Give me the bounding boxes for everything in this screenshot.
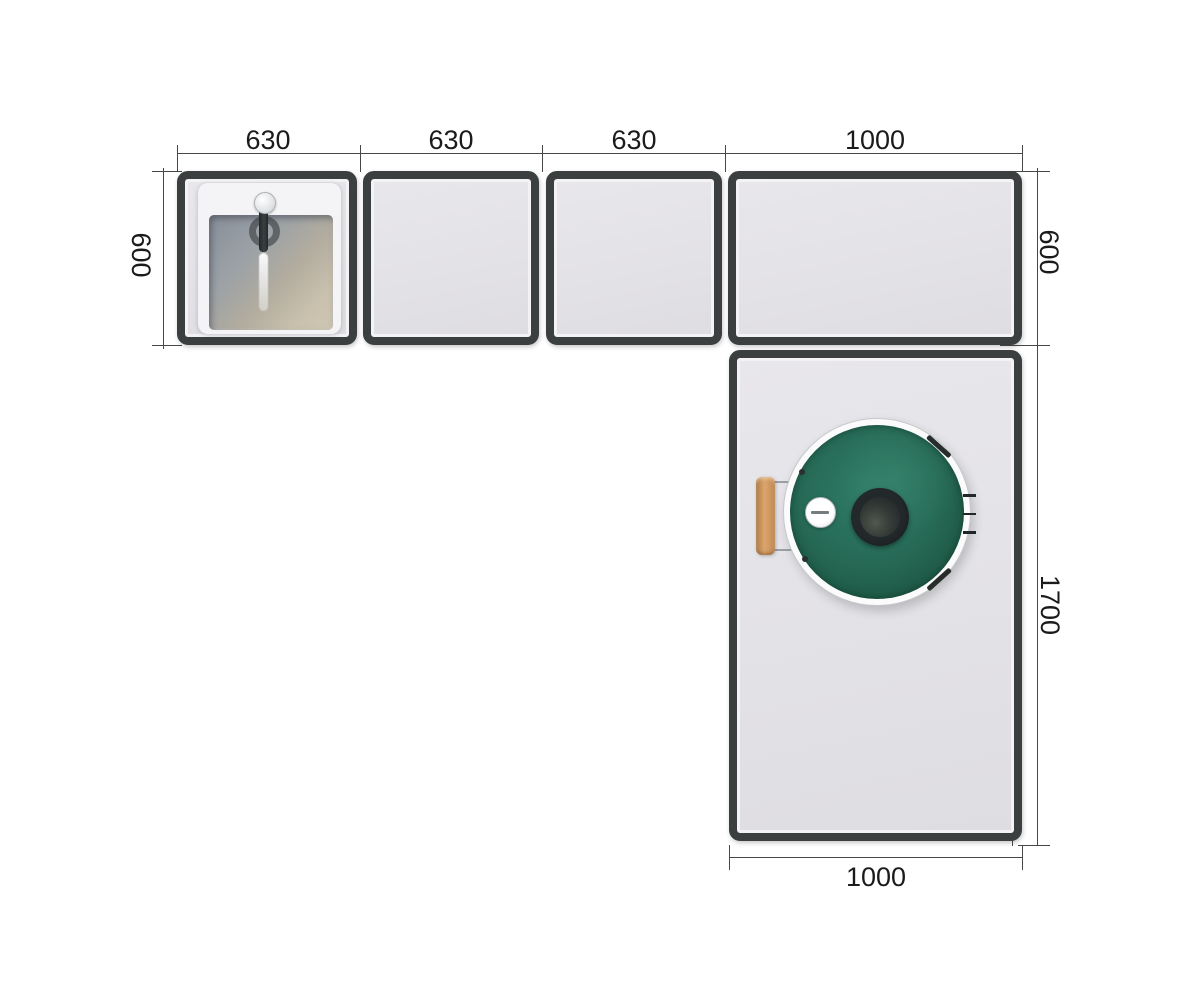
- kamado-grill: [783, 418, 971, 606]
- dim-label-module3-width: 630: [584, 126, 684, 154]
- extension-tick: [1022, 145, 1023, 172]
- grill-wood-handle: [756, 477, 775, 555]
- extension-tick: [729, 845, 730, 870]
- grill-band-bolt: [799, 469, 805, 475]
- grill-hinge-tick: [963, 531, 976, 534]
- dim-label-module2-width: 630: [401, 126, 501, 154]
- extension-tick: [1022, 845, 1023, 870]
- grill-hinge-tick: [963, 494, 976, 497]
- grill-band-bolt: [802, 556, 808, 562]
- dim-label-module4-width: 1000: [825, 126, 925, 154]
- dim-label-bottom-width: 1000: [826, 863, 926, 891]
- extension-tick: [542, 145, 543, 172]
- module-worktop-3: [546, 171, 722, 345]
- grill-vent-cap: [860, 497, 900, 537]
- extension-tick: [1018, 845, 1050, 846]
- faucet-knob: [254, 192, 276, 214]
- thermometer-needle: [811, 511, 829, 514]
- extension-tick: [152, 345, 182, 346]
- drawing-canvas: 630 630 630 1000 600 600 1700 1000: [0, 0, 1202, 1001]
- extension-tick: [360, 145, 361, 172]
- module-worktop-2: [363, 171, 539, 345]
- grill-hinge-tick: [963, 513, 976, 516]
- dim-label-right-length: 1700: [1036, 555, 1064, 655]
- dim-label-left-depth: 600: [127, 205, 155, 305]
- sink-tray: [198, 183, 341, 334]
- dimension-line-left: [163, 168, 164, 349]
- dimension-line-bottom: [729, 857, 1022, 858]
- module-worktop-4: [728, 171, 1022, 345]
- faucet-spout: [259, 209, 268, 252]
- dim-label-module1-width: 630: [218, 126, 318, 154]
- extension-tick: [725, 145, 726, 172]
- grill-thermometer: [805, 497, 836, 528]
- sink-basin-reflection: [259, 253, 268, 311]
- extension-tick: [177, 145, 178, 172]
- extension-tick: [152, 171, 182, 172]
- module-grill-cabinet: [729, 350, 1022, 841]
- dim-label-right-depth: 600: [1035, 202, 1063, 302]
- module-sink-cabinet: [177, 171, 357, 345]
